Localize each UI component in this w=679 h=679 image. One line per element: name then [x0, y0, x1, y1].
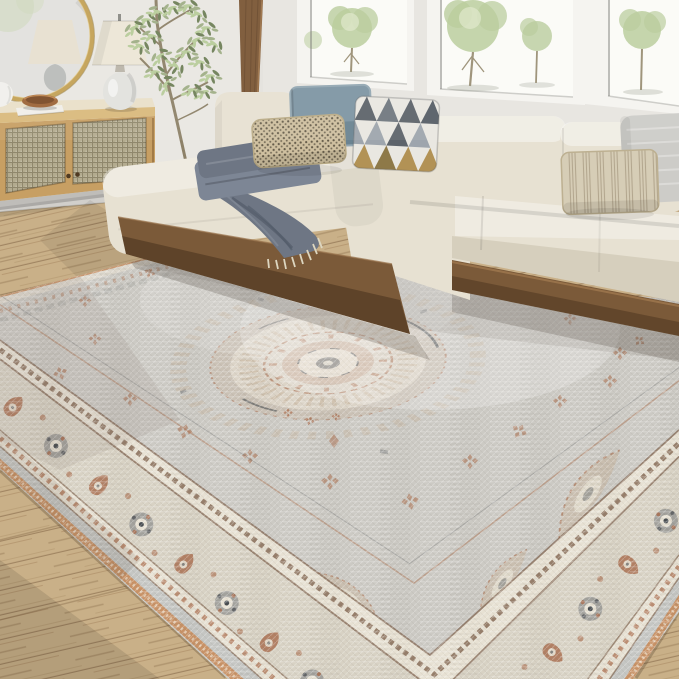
- striped-lumbar-pillow: [561, 149, 659, 214]
- light-haze: [0, 0, 679, 140]
- credenza-knob[interactable]: [66, 174, 71, 179]
- scene-canvas: [0, 0, 679, 679]
- living-room-photo: [0, 0, 679, 679]
- credenza-knob[interactable]: [75, 172, 80, 177]
